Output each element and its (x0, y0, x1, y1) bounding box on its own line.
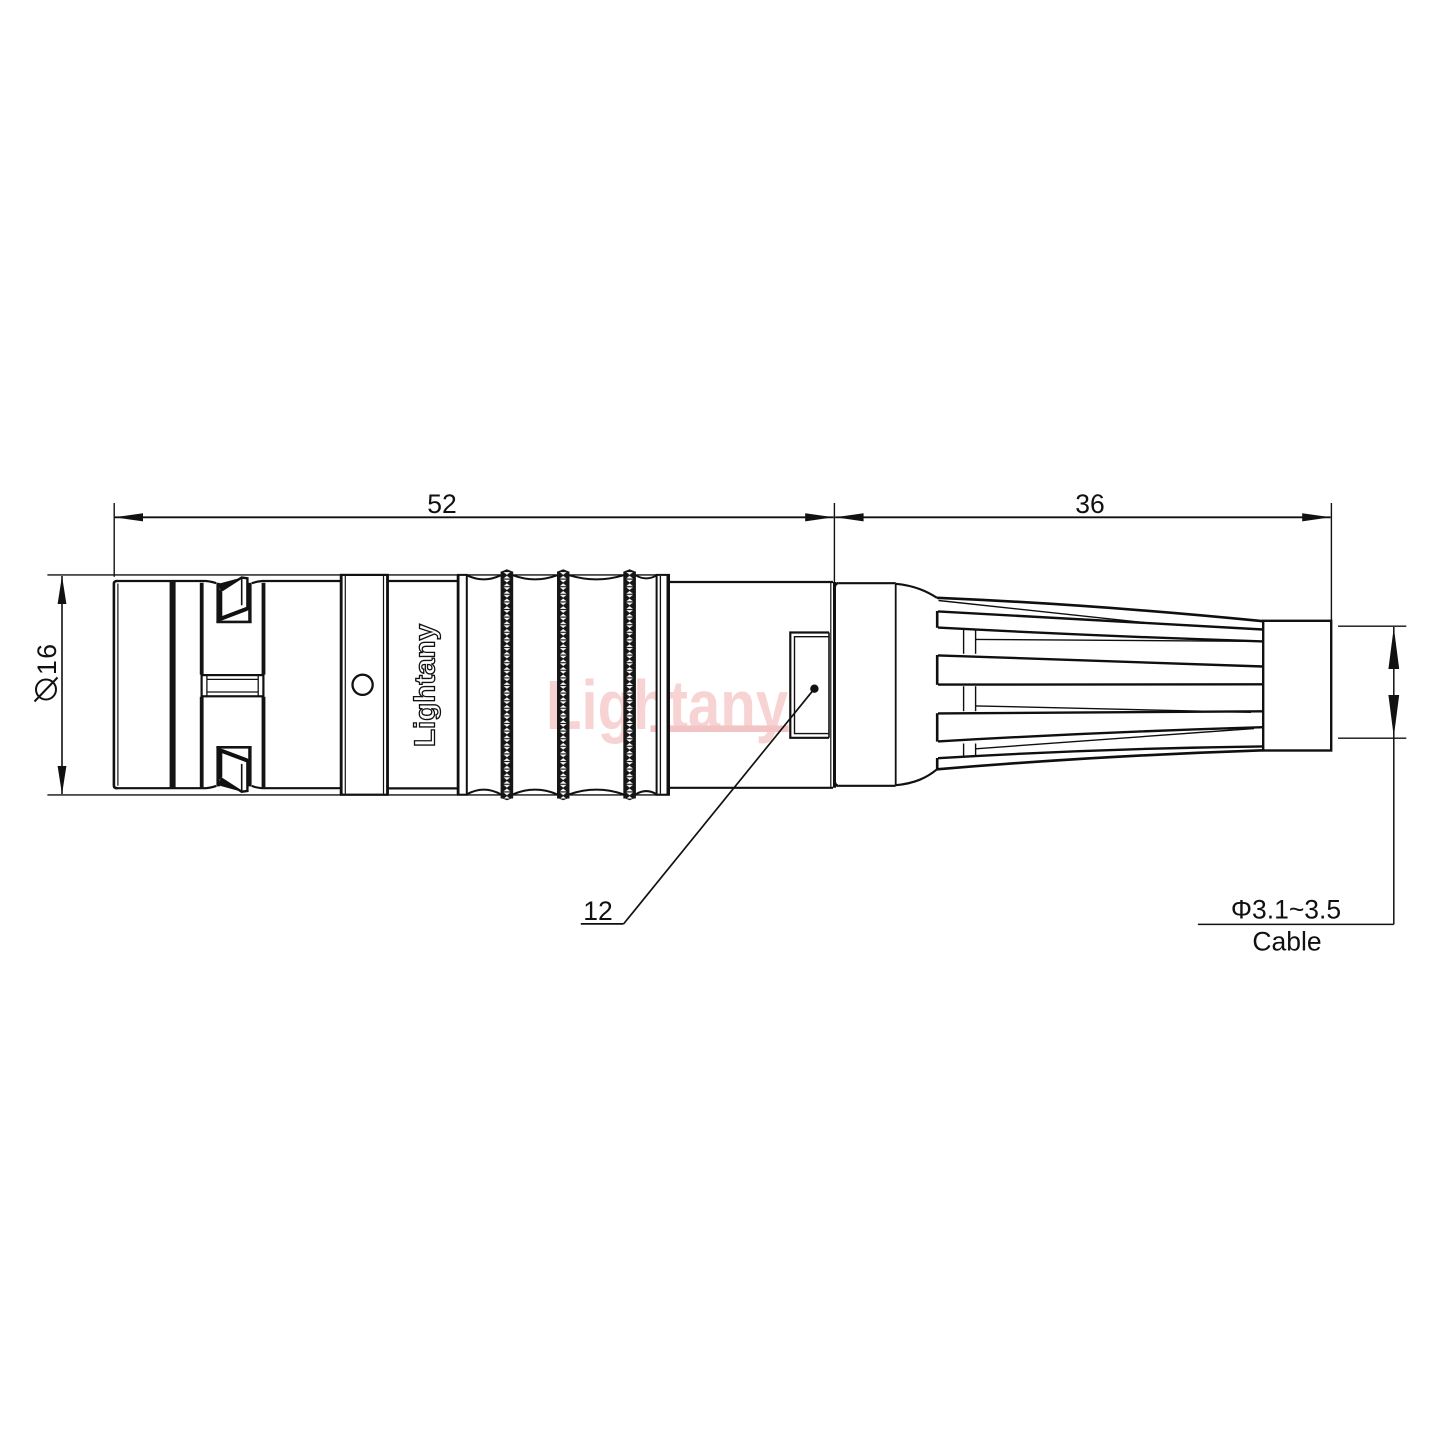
svg-text:36: 36 (1075, 489, 1104, 519)
svg-text:Φ3.1~3.5: Φ3.1~3.5 (1231, 895, 1341, 925)
svg-text:52: 52 (427, 489, 456, 519)
svg-text:Cable: Cable (1252, 927, 1321, 957)
svg-text:12: 12 (583, 896, 612, 926)
svg-text:16: 16 (32, 643, 62, 675)
svg-text:Lightany: Lightany (410, 624, 442, 747)
